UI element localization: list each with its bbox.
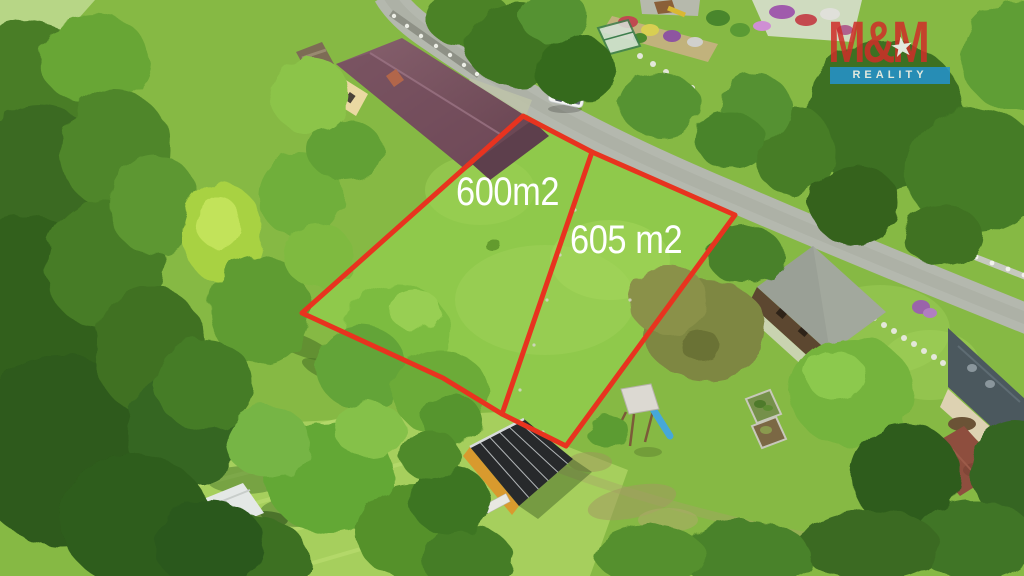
- logo-tagline: REALITY: [830, 67, 950, 84]
- aerial-photo-listing: 600m2 605 m2 M&M ★ REALITY: [0, 0, 1024, 576]
- agency-logo: M&M ★ REALITY: [828, 16, 964, 88]
- plot-label-605: 605 m2: [570, 220, 682, 260]
- star-icon: ★: [888, 32, 916, 62]
- plot-label-600: 600m2: [456, 172, 559, 212]
- play-tower: [640, 0, 700, 16]
